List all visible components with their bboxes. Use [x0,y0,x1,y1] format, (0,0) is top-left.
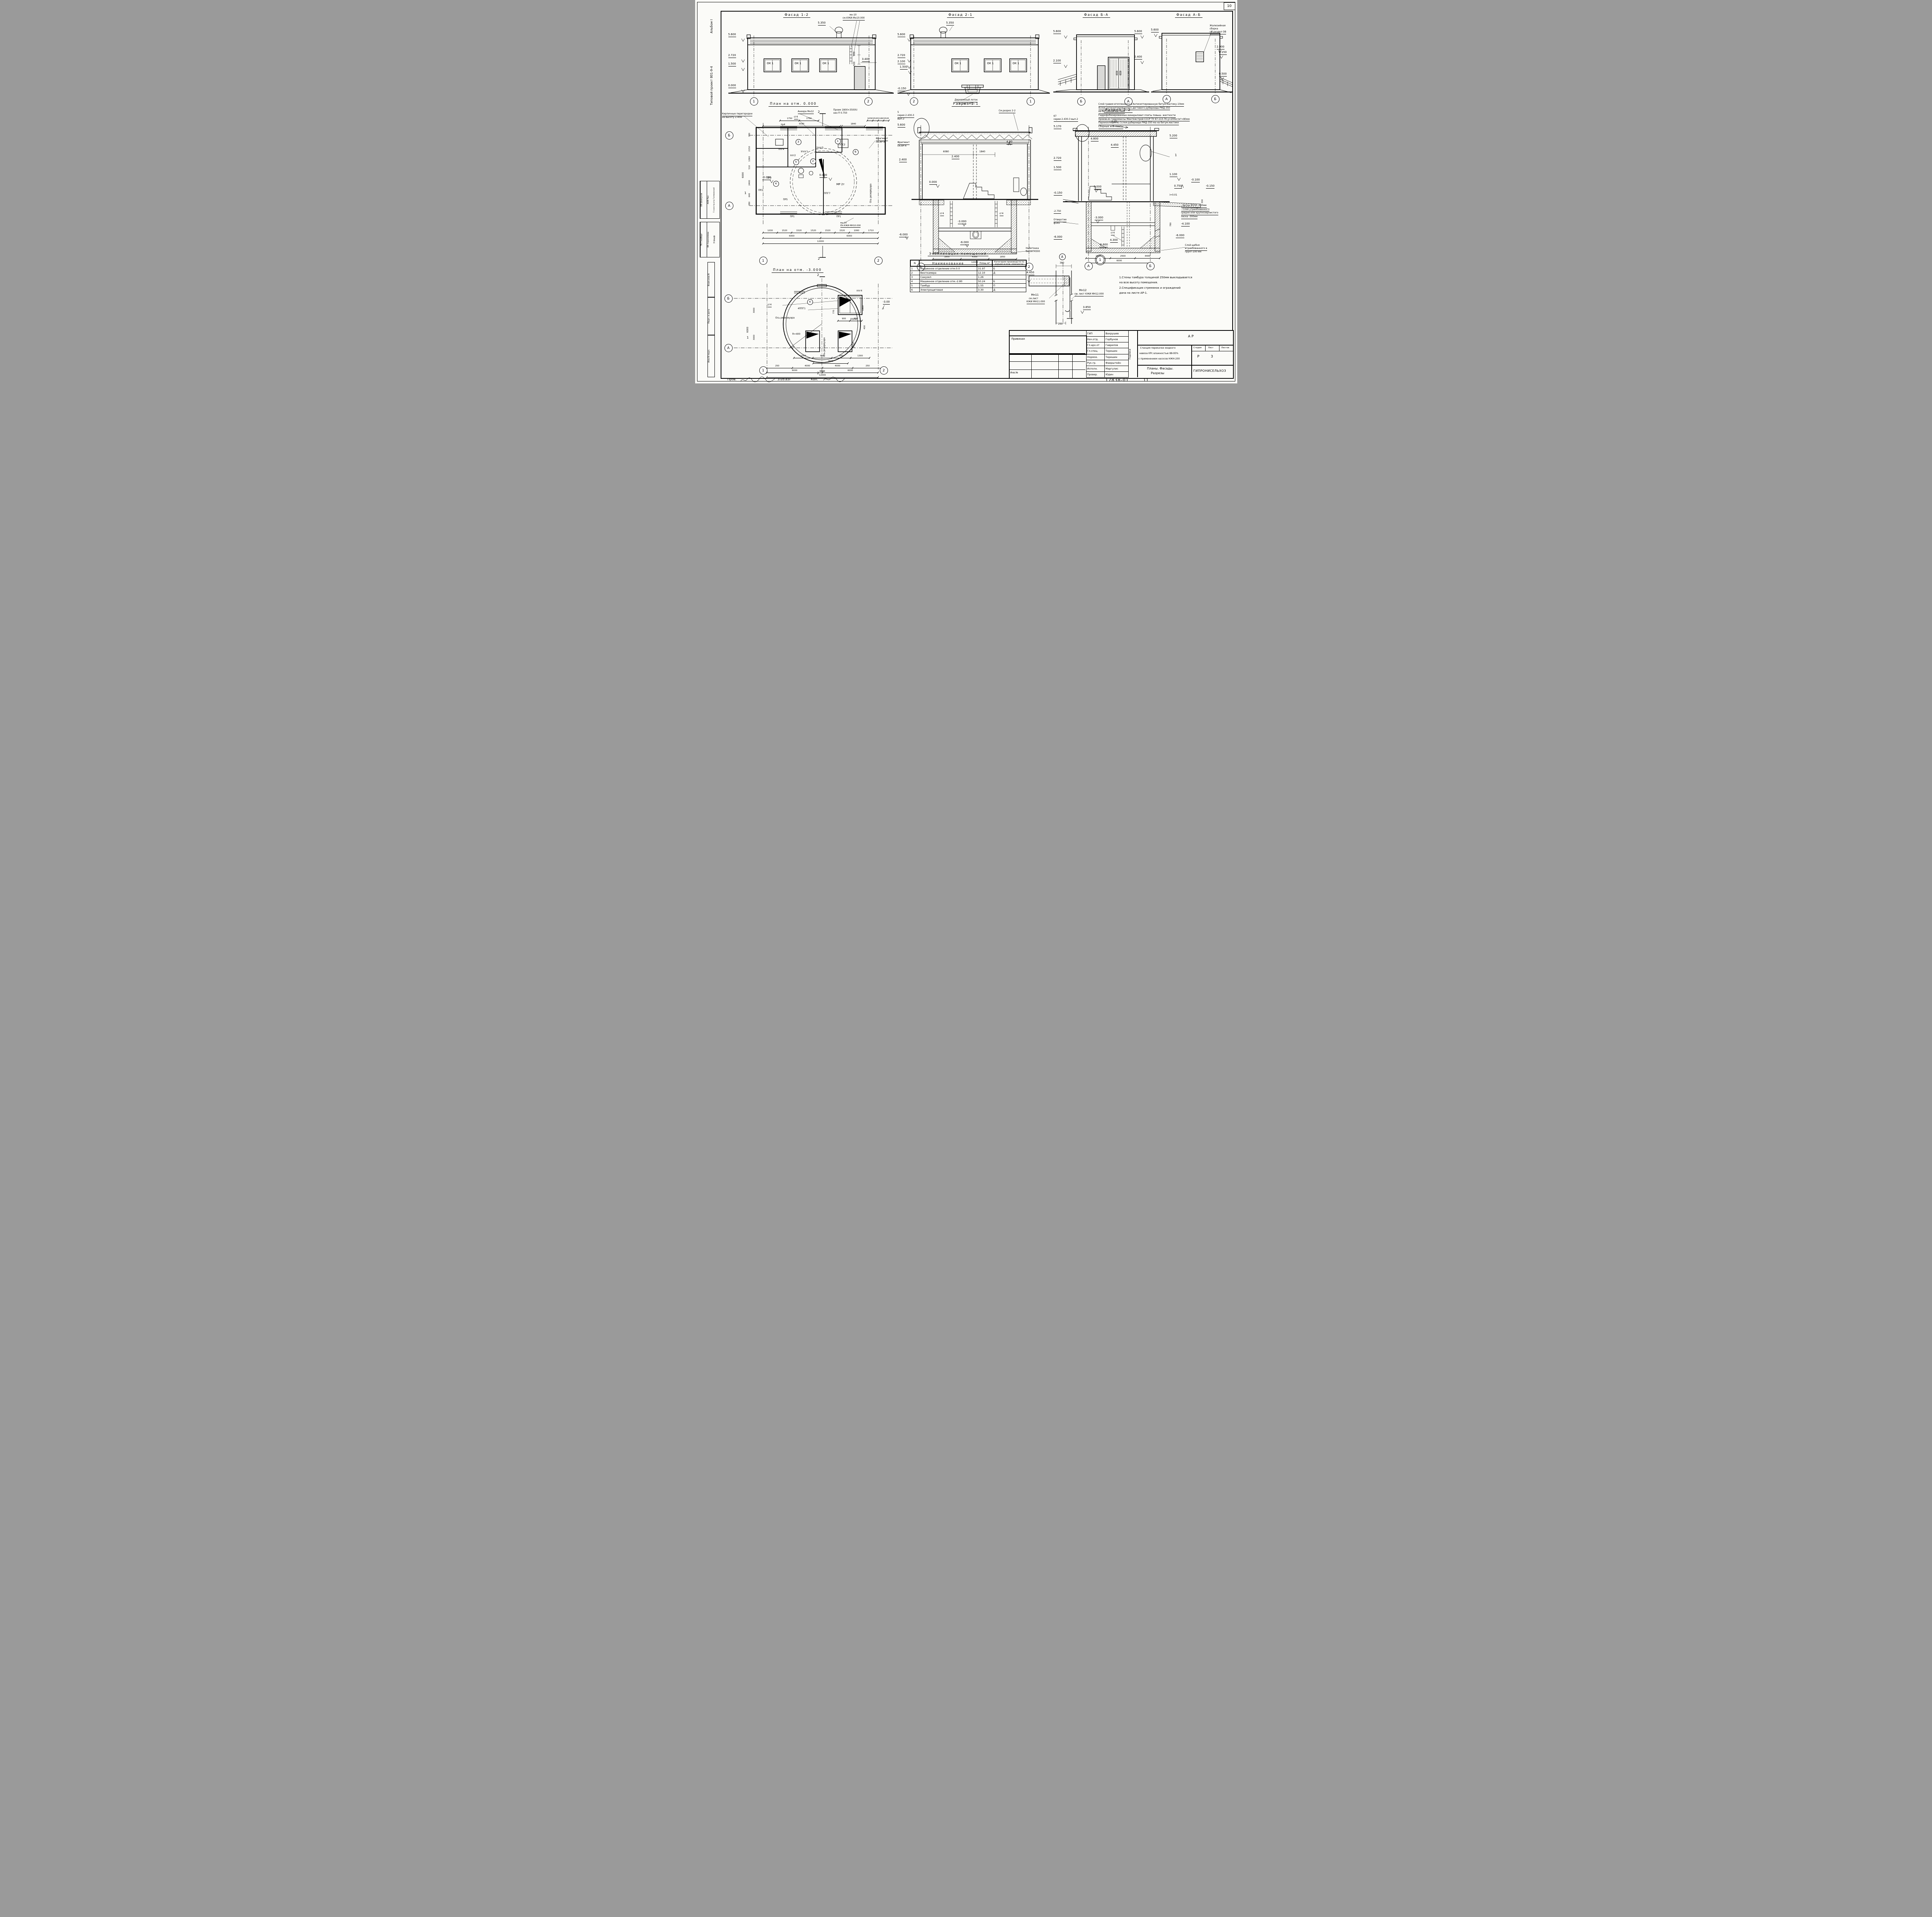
elev-2900: 2.900 [1217,46,1225,49]
margin-stamp-a: ОВ Шевкунов АОВ Паз Гл.констр.отд Голяко… [700,181,720,219]
check-date: 3.05.83г [778,378,791,381]
room-1: 1 [835,138,841,144]
margin-block-inv: Инв.N подл. [707,335,715,377]
dim-1800: 1800 [862,305,864,311]
sg4-label: сг4 [1000,213,1003,216]
mn12-note-1: Мн12 [1079,289,1087,292]
slope-i001: i=0.01 [1170,194,1177,197]
section-1-1-title: Разрез 1-1 [952,102,981,107]
margin-stamp-b: ТК Глейберг ВК Сорокомова Э Шарф [700,222,720,257]
room-4: 4 [807,299,813,305]
hole-note-2: ф165 [1054,222,1060,225]
section-mark-1: 1 [745,192,747,195]
room-3: 3 [796,139,801,145]
list-item: 1520 [777,230,792,233]
elev-1500: 1.500 [1054,166,1061,170]
ppg5-label: 2ппг5 [816,147,824,150]
pr1-label: ПР1 [837,216,841,218]
slope-001: 0.01 [1112,121,1118,124]
elev-0750: 0.750 [1174,185,1182,189]
facade-2-1-drawing [897,13,1050,107]
dim-3000: 3000 [753,308,755,313]
elev-5350: 5.350 [818,22,826,26]
series-note-3: вып.2 [898,118,905,121]
list-item: 250 [853,365,883,368]
mark-code: АР [1188,335,1195,339]
privyazan-box: Привязан [1009,335,1087,355]
axis-reservoir-label: Ось резервуара [870,182,872,205]
explication-table: N Наименование Площ м² Категория произво… [910,260,1027,292]
axis-bubble-a: А [724,344,733,352]
section-2-2-drawing [1054,108,1234,271]
plan-0000: План на отм. 0.000 Кирпичные перегородки… [722,102,897,270]
list-item: 1750 [799,117,819,121]
elev-m6000: -6.000 [960,241,969,245]
list-item: 1520 [821,230,835,233]
room-6: 6 [853,149,859,155]
elev-5600: 5.600 [1053,30,1061,34]
list-item: песка -300мм [1181,215,1198,219]
pr5-label: ПР5 [783,199,788,201]
margin-block-podp: Подп. и дата [707,297,715,335]
list-item: 1160 [878,117,884,121]
list-item: 6000 [821,235,878,238]
table-row: 2Венткамера12.10Д [910,271,1026,275]
inv-grid: Инв.№ [1009,353,1085,378]
ppg4-label: ппг4 [779,148,784,151]
series-note-2: серии 2.430-3 вып.2 [1054,118,1078,122]
dim-300: 300 [1201,199,1203,204]
section-mark-2: 2 [818,111,820,114]
axis-bubble-a: А [1163,95,1171,103]
section-2-2: Разрез 2-2 67 серии 2.430-3 вып.2 5.170 … [1054,108,1234,271]
room-2: 2 [810,158,816,164]
elev-2400: 2.400 [899,158,907,162]
list-item: 850 [813,355,832,358]
drawing-sheet: 10 Альбом I Типовой проект 801-9-4 ОВ Ше… [695,0,1237,383]
facade-2-1: Фасад 2-1 5.350 5.600 2.720 2.100 1.500 … [897,13,1050,107]
elev-2720: 2.720 [1054,157,1061,161]
plan-m3000: План на отм. -3.000 сг4 4ППГ1 ппг4 ППГ4 … [722,268,897,378]
explication: Экспликация помещений N Наименование Пло… [910,252,1027,334]
list-item: 1520 [835,230,849,233]
dim-left: 640 [748,193,750,197]
document-sheet-number: 11 [1143,378,1149,383]
table-row: Исполн.Маргулис [1086,366,1128,371]
axis-bubble-b: Б [725,131,733,140]
louver-note-2: сборка [1210,28,1218,31]
table-row: Гл.арх.отГаврилов [1086,342,1128,348]
signature-icon [740,376,776,383]
signature-table: ГИПВахрушевНач.отд.ГорбуновГл.арх.отГавр… [1086,330,1129,378]
pps2-label: ППС2 [839,144,845,146]
dim-row: 5590 [763,123,840,126]
list-item: 1300 [851,355,870,358]
ppg4-label: ппг4 [857,290,862,293]
elev-5600: 5.600 [898,124,905,128]
mn10-label: мн-10 [850,14,857,17]
elev-m4100: -4.100 [1181,223,1190,226]
elev-m3000: -3.000 [1095,216,1104,220]
section-1-1-drawing [898,102,1051,271]
section-mark-2: 2 [818,257,820,261]
list-item: - Слой утрамбованного [1181,208,1210,212]
mn12-note-2: см. лист КЖИ МН12.000 [1075,293,1104,296]
table-row: 3Санузел1.26 [910,275,1026,279]
window-label: ОК 1 [823,62,829,65]
axis-bubble-1: 1 [759,366,767,375]
elev-4800: 4.800 [1091,138,1099,141]
sheet-value: 3 [1211,355,1213,359]
mr2t-label: МР 2т [837,183,845,186]
room-4: 4 [773,181,779,187]
list-item: 1.Стены тамбура толщиной 250мм выкладыва… [1119,275,1234,280]
section-mark-2: 2 [817,372,819,375]
plan-m3000-drawing [722,268,897,378]
pr1-label: ПР1 [790,216,795,218]
elev-2720: 2.720 [728,54,736,58]
elev-1500: 1.500 [728,63,736,66]
elev-0000: 0.000 [728,84,736,88]
inv-number-label: Инв.№ [1010,372,1018,375]
sg4-label: сг4 [768,304,772,307]
series-note-1: 5 [898,111,899,114]
list-item: средне или крупнозернистого [1181,211,1218,215]
object-line-3: с применением насосов НЖН-200 [1139,358,1180,361]
opening-note-2: низ ∇ 0.750 [833,112,847,115]
dim-row: 2600 [813,360,848,364]
ppg7-label: ППГ7 [824,192,831,195]
margin-block-vzam: Взам.инв.N [707,262,715,298]
table-row: Гл.спец.Терешин [1086,348,1128,354]
elev-2720: 2.720 [898,54,905,58]
dim-row-bottom: 60006000 [767,369,878,373]
content-line-1: Планы. Фасады. [1147,367,1173,371]
opening-note-1: Проем 1800×350(h) [833,109,857,112]
facade-1-2-title: Фасад 1-2 [783,13,811,18]
dim-row-bottom: 10301520152015201520152010601710 [763,230,878,233]
table-row: Рук.гр.Фаерштейн [1086,360,1128,366]
axis-bubble-b: Б [1077,97,1085,106]
list-item: 4000 [793,365,823,368]
margin-sign: ОВ Шевкунов [700,181,707,218]
uppg1-label: Уппг1 [801,151,808,153]
sheet-header: Лист [1208,347,1214,349]
table-row: Провер.Юдин [1086,371,1128,377]
elev-4450: 4.450 [1027,271,1034,275]
ppg1-label: 4ППГ1 [798,308,806,310]
anchor-note: Анкера Мн12 [798,111,814,114]
margin-sign: Э Шарф [713,222,719,257]
privyazan-label: Привязан [1012,338,1025,341]
dim-380: 380 [1060,262,1064,265]
window-label: ОК 1 [987,62,994,65]
window-label: ОК 1 [767,62,774,65]
dim-left: 380 [748,133,750,137]
list-item: 4400 [1135,255,1160,259]
elev-m2750: -2.750 [1054,210,1061,214]
elev-5600: 5.600 [898,33,905,37]
list-item: 6000 [823,369,878,373]
facade-b-a-title: Фасад Б-А [1083,13,1111,18]
nabetonka-note-1: Набетонка [1026,247,1039,250]
table-row: 1Машинное отделение отм.0.031.97Б [910,266,1026,271]
facade-a-b-title: Фасад А-Б [1175,13,1203,18]
explication-header: N Наименование Площ м² Категория произво… [910,260,1026,266]
elev-m300: -3.00 [883,301,890,305]
elev-3850: 3.850 [1083,306,1091,310]
pr2-label: ПР2 [759,189,763,192]
dim-row: 17501750 [780,117,819,121]
object-line-1: Станция перекачки жидкого [1140,347,1176,350]
detail-bubble-1: 1 [1096,256,1104,264]
margin-project-label: Типовой проект 801-9-4 [710,43,716,128]
axis-bubble-2: 2 [880,366,888,375]
dim-3000: 3000 [753,335,755,340]
elev-m0150: -0.150 [898,87,906,91]
checked-label: Пров. [728,378,736,381]
list-item: 1030 [867,117,873,121]
elev-2100: 2.100 [898,60,905,64]
stage-header: Стадия [1194,347,1202,349]
table-row: 6Электрощитовая3.30Д [910,288,1026,292]
dim-left-total: 6000 [742,172,745,178]
list-item: 2600 [813,360,848,364]
axis-bubble-b: Б [1146,262,1155,270]
sg4-label: сг4 [1111,232,1115,235]
col-area: Площ м² [977,260,992,266]
list-item: - Бетон М150 -100мм [1181,204,1207,208]
dim-500: 500 [853,61,856,66]
list-item: 1520 [873,117,878,121]
list-item: 6000 [767,369,823,373]
margin-sign: АОВ Паз [707,181,713,218]
window-label: ОК 1 [1013,62,1019,65]
ppg2-label: ппг2 [790,155,796,157]
list-item: 1030 [763,230,777,233]
axis-bubble-a: А [725,202,733,210]
list-item: 1520 [792,230,806,233]
elev-2150: 2.150 [1219,51,1227,55]
series-note-1: 67 [1054,115,1057,118]
partition-note-2: на высоту 2.40м [722,116,742,119]
section-mark-1: 1 [747,336,749,340]
dim-row-bottom: 60006000 [763,235,878,238]
elev-1100: 1.100 [1170,173,1177,177]
section-1-1: Разрез 1-1 См.разрез 2-2 5 серия 2.430-3… [898,102,1051,271]
list-item: 1840 [842,123,865,126]
list-item: 1750 [780,117,799,121]
elev-0000: 0.000 [929,181,937,185]
pr3-label: ПР3 [767,177,772,180]
elev-2400: 2.400 [952,155,959,159]
axis-bubble-a: А [1059,254,1066,260]
list-item: 250 [762,365,793,368]
list-item: 900 [850,318,862,321]
copied-label: Коп. [811,378,818,381]
elev-5200: 5.200 [1170,134,1177,138]
list-item: 850 [832,355,851,358]
dim-row: 1030152011601520 [867,117,885,121]
elev-m6000: -6.000 [899,233,908,237]
list-item: Слой гравия втопленного в Антисептирован… [1099,103,1184,107]
col-n: N [910,260,920,266]
general-notes: 1.Стены тамбура толщиной 250мм выкладыва… [1119,275,1234,296]
fragment-note-2: см.АР-4 [876,141,885,144]
window-label: ОК 1 [955,62,961,65]
detail-drawing [1026,253,1119,326]
title-block: Привязан Инв.№ ГИПВахрушевНач.отд.Горбун… [1009,330,1234,379]
elev-m6000: -6.000 [1054,236,1063,240]
elev-m3000: -3.000 [958,220,967,224]
pr4-label: пр4 [781,124,786,126]
table-row: 5Тамбур1.55П [910,284,1026,288]
mn11-note-1: Мн11 [1031,294,1039,297]
margin-album-label: Альбом I [710,14,716,39]
section-mark-2: 2 [817,274,819,277]
list-item: 6000 [763,235,821,238]
facade-a-b: Фасад А-Б 5.600 Жалюзийная сборка см.раз… [1151,13,1234,104]
dim-left: 2400 [748,180,750,186]
dim-row: 13008508501300 [794,355,870,358]
signature-icon [823,376,846,383]
col-cat: Категория производств по взрыво и пож. о… [992,260,1026,266]
elev-m6000: -6.000 [1176,234,1185,238]
stage-value: Р [1197,355,1199,359]
table-row: ГИПВахрушев [1086,331,1128,337]
facade-b-a-drawing [1053,13,1150,107]
list-item: 12000 [763,240,878,244]
room-5: 5 [793,159,799,165]
elev-5600: 5.600 [728,33,736,37]
organization-name: ГИПРОНИСЕЛЬХОЗ [1194,369,1226,373]
explication-title: Экспликация помещений [928,252,988,256]
floor-layers-note: - Бетон М150 -100мм- Слой утрамбованного… [1181,204,1218,219]
mn11-note-3: КЖИ МН11.000 [1027,301,1045,304]
list-item: 1300 [794,355,813,358]
corner-sheet-number: 10 [1224,2,1235,10]
list-item: 1710 [864,230,878,233]
dim-780: 780 [1169,223,1172,227]
facade-1-2: Фасад 1-2 мн-10 см.КЖИ-Мн10.000 5.350 5.… [725,13,894,107]
elev-3400: 3.400 [862,58,870,62]
dim-left: 510 [748,165,750,170]
document-number: 17838-01 [1105,378,1129,383]
table-row: Нач.отд.Горбунов [1086,337,1128,342]
dim-row-bottom: 25040004000250 [762,365,883,368]
window-label: ОК 1 [795,62,801,65]
dim-1840: 1840 [980,151,985,153]
dim-row: 900900 [838,318,862,321]
facade-b-a: Фасад Б-А 5.600 2.100 5.600 2.400 Б А [1053,13,1150,107]
facade-2-1-title: Фасад 2-1 [947,13,975,18]
elev-0500: 0.500 [1219,73,1227,77]
elev-1500: 1.500 [900,66,908,70]
margin-sign: Гл.констр.отд Голяковский [713,181,719,218]
list-item: 4000 [823,365,853,368]
axis-reservoir-label: Ось резервуара [776,317,795,320]
axis-bubble-2: 2 [874,257,883,265]
elev-5600: 5.600 [1151,29,1159,32]
mn10-note-1: мн-10 [840,222,847,224]
elev-5170: 5.170 [1054,125,1061,129]
axis-bubble-b: Б [724,295,733,303]
dim-left: 1060 [748,156,750,162]
list-item: на всю высоту помещения. [1119,280,1234,285]
margin-sign: ВК Сорокомова [707,222,713,257]
fragment-note-2: см.АР-4 [898,145,906,148]
dim-6000: 6000 [747,327,749,332]
gravel-note-3: грунт-100 мм [1185,251,1202,254]
axis-bubble-1: 1 [759,257,767,265]
list-item: 5590 [763,123,840,126]
elev-4300: 4.300 [1110,239,1118,243]
dim-row: 1840 [842,123,865,126]
margin-sign: ТК Глейберг [700,222,707,257]
dim-2500: 2500 [852,342,855,348]
elev-m0100: -0.100 [1191,179,1200,182]
list-item: 1520 [884,117,889,121]
list-item: 1520 [806,230,820,233]
dim-400: 400 [863,325,866,330]
dim-800: 800 [853,51,856,56]
elev-m0150: -0.150 [1206,185,1215,189]
sheets-header: Листов [1221,347,1230,349]
podpisi-column: Подписи [1129,331,1138,377]
mn10-note-2: см.КЖИ-МН10.000 [840,225,861,228]
signature-rows: ГИПВахрушевНач.отд.ГорбуновГл.арх.отГавр… [1086,331,1128,378]
dim-left: 380 [748,202,750,206]
elev-m0150: -0.150 [1054,192,1063,196]
mn10-ref: см.КЖИ-Мн10.000 [843,17,865,20]
elev-5600-right: 5.600 [1134,30,1142,34]
object-line-2: навоза КРс влажностью 88-95% [1139,352,1179,355]
axis-bubble-b: Б [1211,95,1219,103]
elev-4450: 4.450 [1111,144,1119,148]
elev-0000: 0.000 [820,174,827,178]
content-line-2: Разрезы [1151,372,1165,375]
dim-left: 2150 [748,146,750,152]
dim-6080: 6080 [943,151,949,153]
louver-note-3: см.раздел ОВ [1210,31,1226,34]
detail-ref-1: 1 [1175,154,1177,157]
elev-0000: 0.000 [1094,186,1102,189]
list-item: 1060 [849,230,864,233]
dim-250: 250 [1058,323,1063,326]
elev-480: 4.80 [1007,141,1013,145]
radius-label: R=400 [793,333,801,336]
gravel-note-1: Слой щебня [1185,244,1200,247]
table-row: 4Машинное отделение отм.-2.8050.24Б [910,279,1026,284]
louver-note-1: Жалюзийная [1210,25,1226,27]
list-item: дана на листе АР-1. [1119,291,1234,296]
detail-node-1: А 1 380 4.450 Мн11 см.лист КЖИ МН11.000 … [1026,253,1119,326]
plan-0000-title: План на отм. 0.000 [769,102,818,107]
explication-body: 1Машинное отделение отм.0.031.97Б2Вентка… [910,266,1026,292]
section-2-2-title: Разрез 2-2 [1104,108,1133,113]
mn11-note-2: см.лист [1029,298,1038,300]
elev-2400: 2.400 [1134,56,1142,60]
plan-m3000-title: План на отм. -3.000 [772,268,823,273]
dim-row-bottom: 12000 [763,240,878,244]
col-name: Наименование [919,260,977,266]
table-row: Нормок.Терешин [1086,354,1128,360]
elev-5350: 5.350 [946,22,954,26]
list-item: 900 [838,318,850,321]
elev-m6600: -6.600 [1099,243,1108,247]
sg4-label: сг4 [940,213,944,216]
elev-2100: 2.100 [1053,60,1061,63]
